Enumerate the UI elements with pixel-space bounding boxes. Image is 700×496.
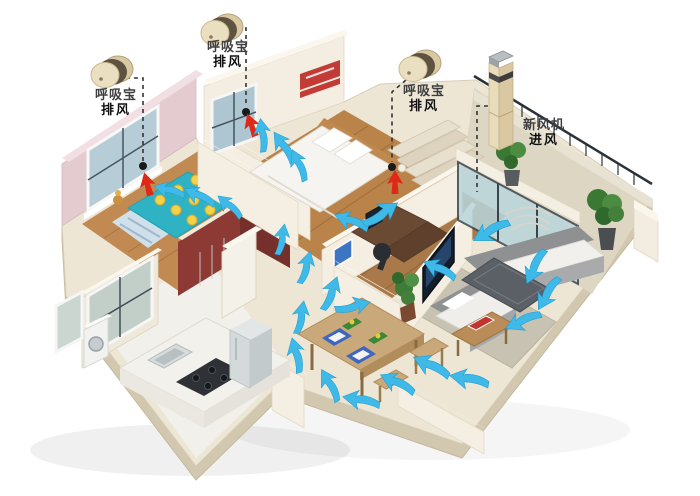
vent-dot-exhaust-3 — [388, 163, 396, 171]
refrigerator — [230, 318, 272, 388]
apartment-airflow-figure: 呼吸宝 排风 呼吸宝 排风 呼吸宝 排风 新风机 进风 — [0, 0, 700, 496]
vent-dot-exhaust-1 — [139, 162, 147, 170]
fresh-air-unit-icon — [489, 51, 513, 150]
small-window — [56, 292, 82, 352]
label-exhaust-1: 呼吸宝 排风 — [84, 88, 148, 118]
device-name: 呼吸宝 — [392, 84, 456, 99]
label-exhaust-3: 呼吸宝 排风 — [392, 84, 456, 114]
vent-dot-exhaust-2 — [242, 108, 250, 116]
device-name: 呼吸宝 — [196, 40, 260, 55]
device-name: 呼吸宝 — [84, 88, 148, 103]
exhaust-device-icon — [91, 56, 133, 88]
device-function: 进风 — [512, 133, 576, 148]
label-exhaust-2: 呼吸宝 排风 — [196, 40, 260, 70]
floorplan-scene — [0, 0, 700, 496]
device-function: 排风 — [196, 55, 260, 70]
exhaust-device-icon — [399, 50, 441, 82]
device-function: 排风 — [392, 99, 456, 114]
device-function: 排风 — [84, 103, 148, 118]
device-name: 新风机 — [512, 118, 576, 133]
label-intake: 新风机 进风 — [512, 118, 576, 148]
teddy-bear — [113, 195, 123, 205]
bedside-lamp — [398, 164, 406, 172]
